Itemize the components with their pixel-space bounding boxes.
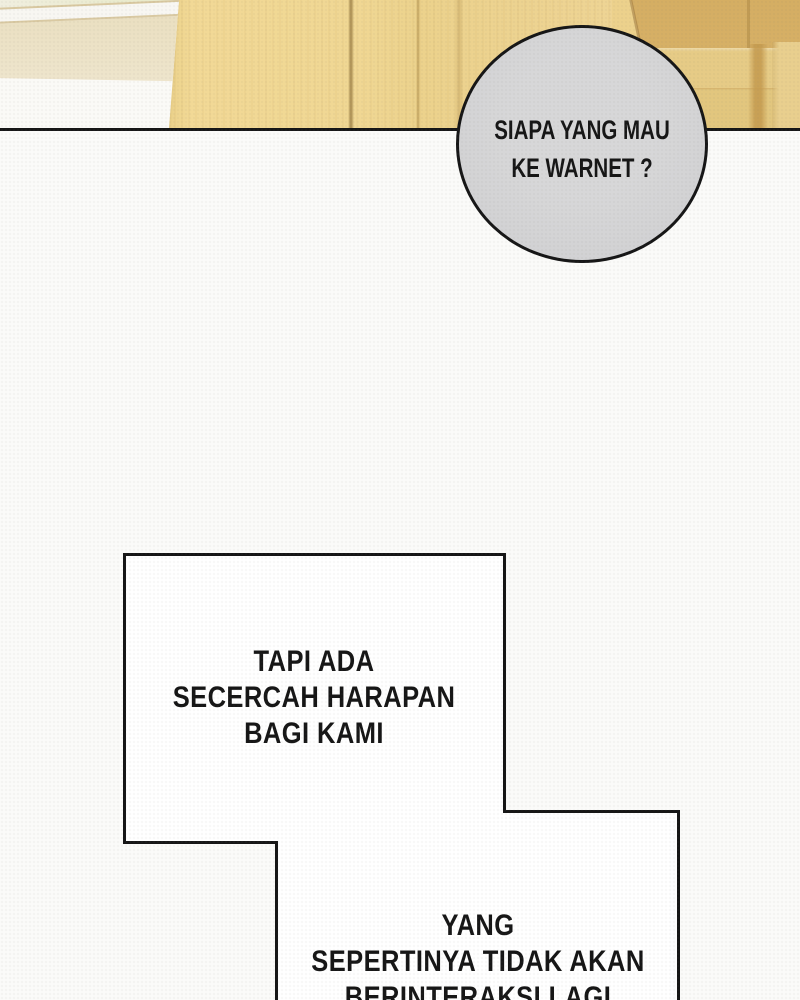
caption-line: BAGI KAMI xyxy=(152,716,477,752)
speech-bubble-circle: SIAPA YANG MAU KE WARNET ? xyxy=(456,25,708,263)
comic-page: SIAPA YANG MAU KE WARNET ? TAPI ADA SECE… xyxy=(0,0,800,1000)
caption-line: YANG xyxy=(307,908,649,944)
caption-line: BERINTERAKSI LAGI xyxy=(307,980,649,1000)
caption-line: TAPI ADA xyxy=(152,644,477,680)
speech-bubble-circle-text: SIAPA YANG MAU KE WARNET ? xyxy=(489,111,676,187)
caption-line: SECERCAH HARAPAN xyxy=(152,680,477,716)
bubble-line: SIAPA YANG MAU xyxy=(489,111,676,149)
caption-line: SEPERTINYA TIDAK AKAN xyxy=(307,944,649,980)
caption-box-interact-text: YANG SEPERTINYA TIDAK AKAN BERINTERAKSI … xyxy=(307,908,649,1000)
caption-box-hope-text: TAPI ADA SECERCAH HARAPAN BAGI KAMI xyxy=(152,644,477,752)
bubble-line: KE WARNET ? xyxy=(489,149,676,187)
